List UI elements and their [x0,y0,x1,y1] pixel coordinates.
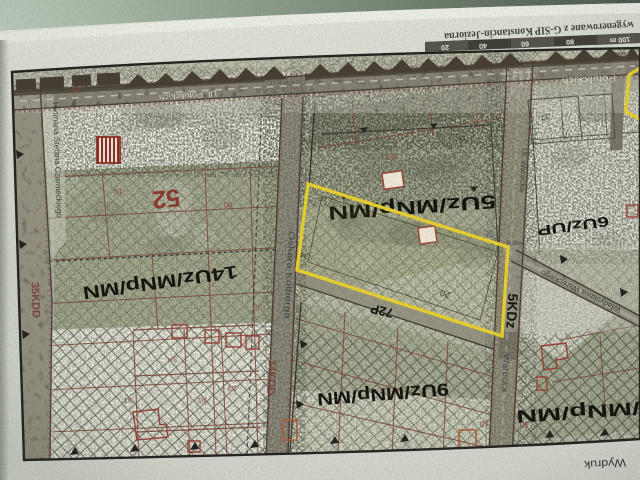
svg-text:60: 60 [521,39,530,49]
svg-text:Wydruk: Wydruk [583,456,626,470]
svg-text:100 m: 100 m [610,35,631,45]
svg-text:40: 40 [479,41,488,51]
svg-text:80: 80 [566,37,575,47]
svg-text:20: 20 [441,43,450,53]
